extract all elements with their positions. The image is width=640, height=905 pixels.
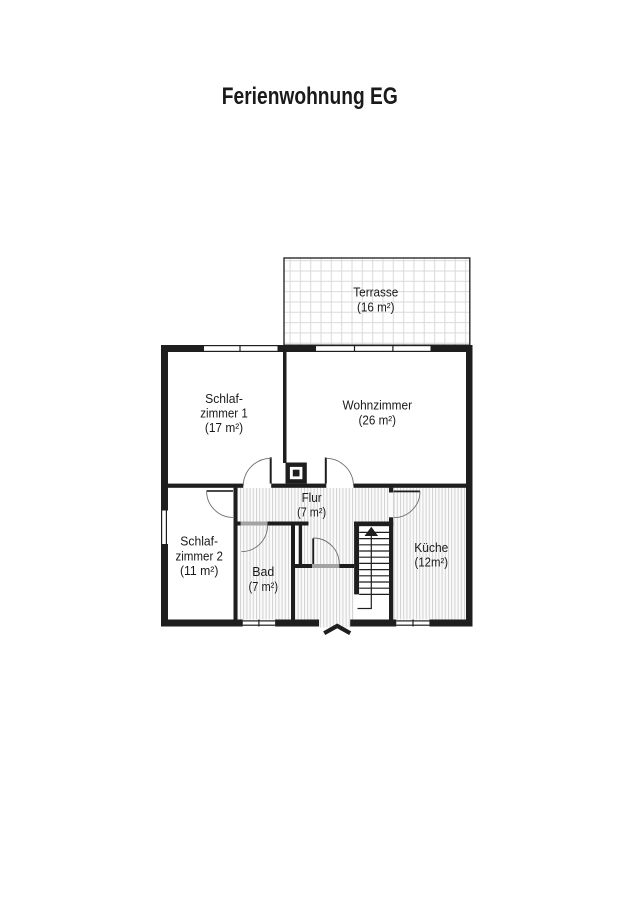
svg-text:Schlaf-: Schlaf-: [205, 391, 243, 406]
svg-text:(12m²): (12m²): [415, 555, 449, 570]
svg-text:(11 m²): (11 m²): [180, 563, 219, 578]
svg-text:Schlaf-: Schlaf-: [180, 534, 218, 549]
svg-text:Wohnzimmer: Wohnzimmer: [343, 398, 413, 413]
svg-text:zimmer 2: zimmer 2: [175, 549, 223, 564]
svg-text:Terrasse: Terrasse: [353, 284, 398, 299]
svg-text:Ferienwohnung EG: Ferienwohnung EG: [222, 83, 398, 110]
svg-text:(26 m²): (26 m²): [359, 412, 397, 427]
svg-text:(7 m²): (7 m²): [249, 579, 279, 594]
svg-text:Bad: Bad: [252, 564, 274, 579]
svg-text:(7 m²): (7 m²): [297, 505, 326, 520]
svg-text:(17 m²): (17 m²): [205, 420, 243, 435]
svg-text:Flur: Flur: [302, 490, 323, 505]
svg-text:(16 m²): (16 m²): [357, 299, 395, 314]
svg-text:zimmer 1: zimmer 1: [200, 406, 248, 421]
svg-text:Küche: Küche: [414, 540, 448, 555]
